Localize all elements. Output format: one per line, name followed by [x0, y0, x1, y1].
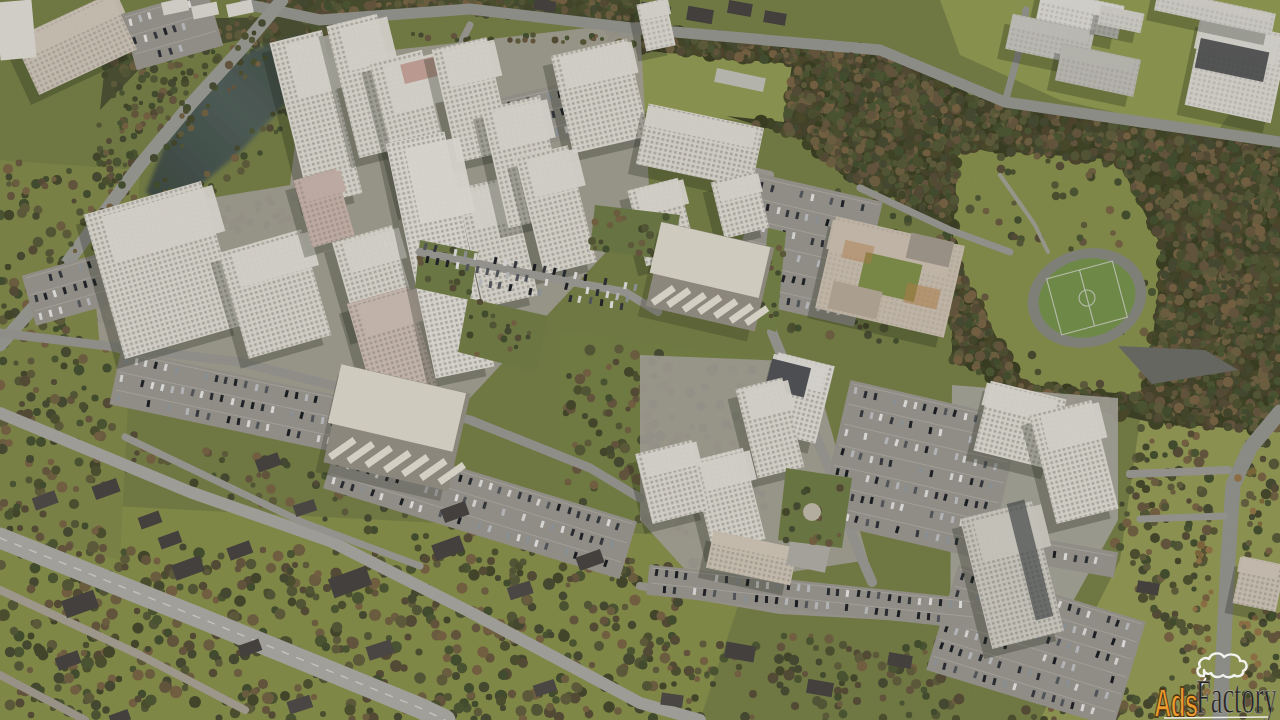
svg-text:Factory: Factory	[1196, 670, 1277, 720]
svg-text:Ads: Ads	[1154, 681, 1198, 720]
